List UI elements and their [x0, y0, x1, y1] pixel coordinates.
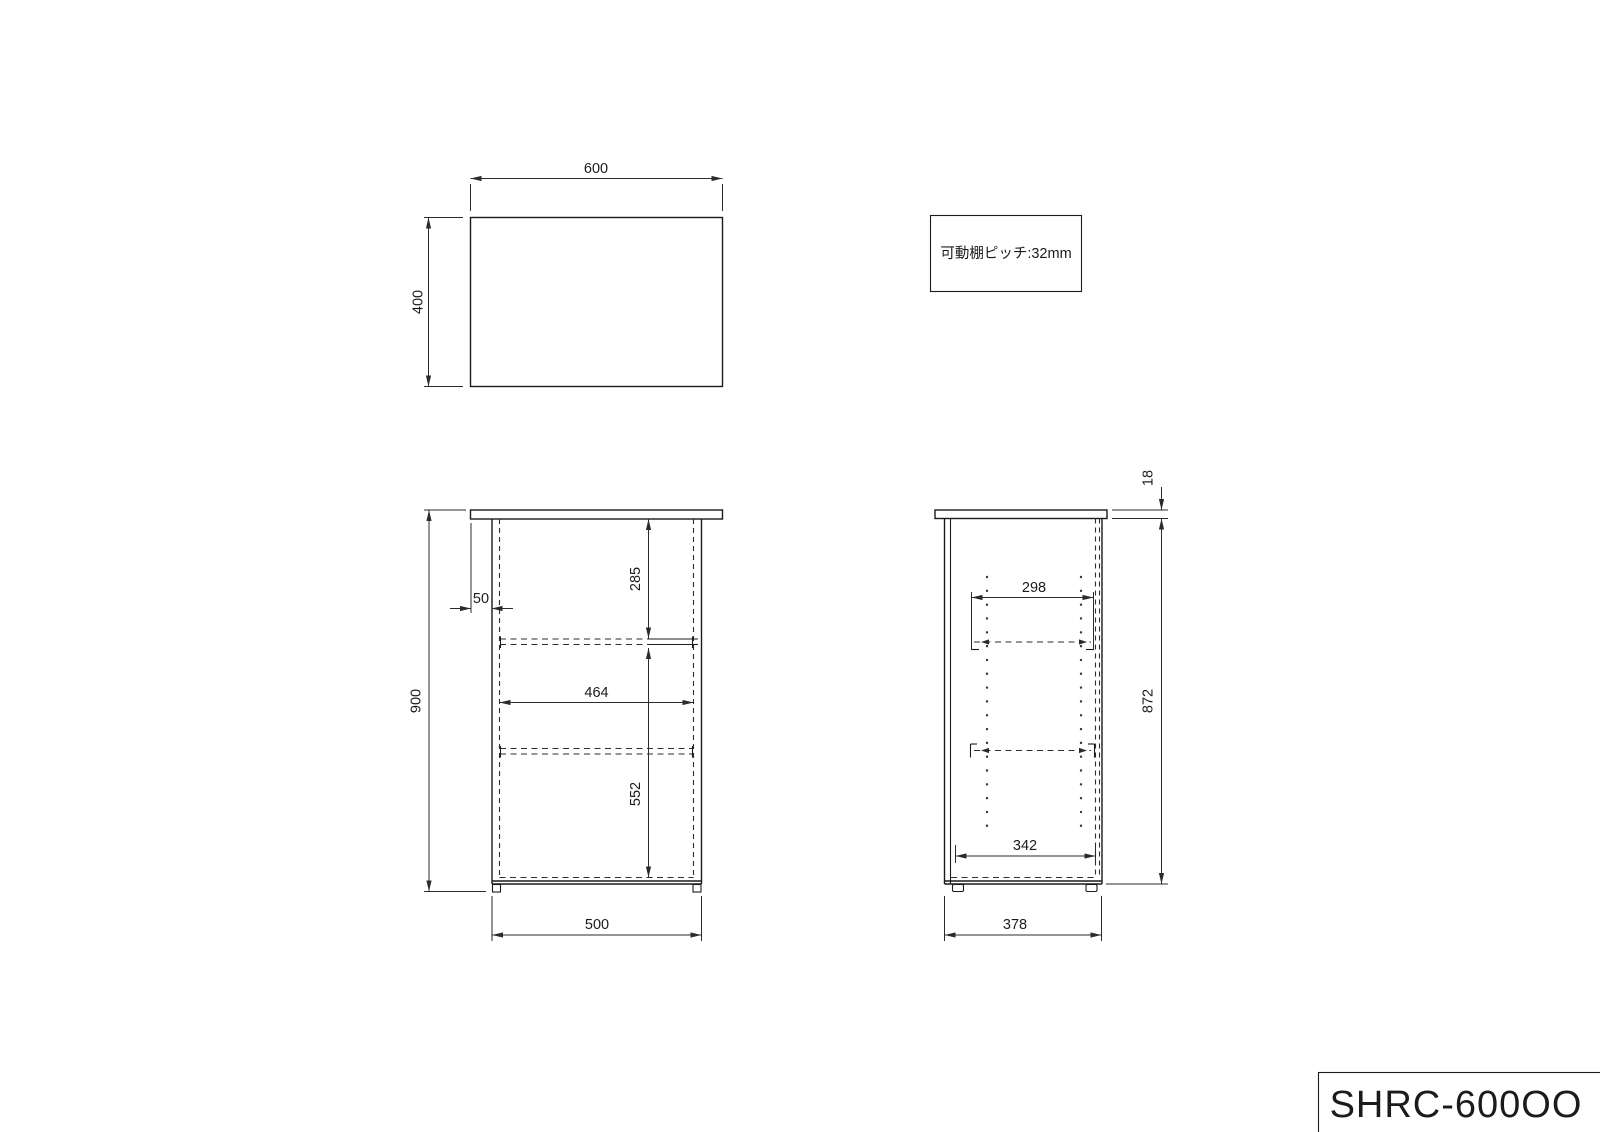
dim-label-side-body-height: 872: [1141, 689, 1157, 713]
dim-label-top-width: 600: [584, 161, 608, 177]
top-view: 600 400: [411, 161, 723, 387]
top-view-outline: [471, 218, 723, 387]
side-view: 298 18 872 342 378: [935, 470, 1168, 941]
dim-label-front-height: 900: [409, 689, 425, 713]
front-right-foot: [693, 885, 701, 893]
dim-label-front-inner-width: 464: [584, 685, 608, 701]
front-top-panel: [471, 510, 723, 519]
side-back-foot: [1086, 885, 1097, 892]
dim-label-front-top-to-shelf: 285: [628, 567, 644, 591]
dim-label-front-overhang: 50: [473, 591, 489, 607]
note-box: 可動棚ピッチ:32mm: [931, 216, 1082, 292]
technical-drawing-page: 600 400 可動棚ピッチ:32mm: [0, 0, 1600, 1132]
title-block: SHRC-600OO: [1319, 1073, 1600, 1132]
front-left-foot: [493, 885, 501, 893]
dim-label-side-inner-depth: 342: [1013, 838, 1037, 854]
model-number: SHRC-600OO: [1330, 1084, 1583, 1126]
side-front-foot: [953, 885, 964, 892]
drawing-canvas: 600 400 可動棚ピッチ:32mm: [0, 0, 1600, 1132]
dim-label-front-shelf-to-bottom: 552: [628, 782, 644, 806]
front-view: 900 50 285 552 464 500: [409, 510, 723, 941]
dim-label-side-top-thickness: 18: [1141, 470, 1157, 486]
dim-label-front-body-width: 500: [585, 917, 609, 933]
shelf-pitch-note: 可動棚ピッチ:32mm: [940, 245, 1071, 262]
dim-label-side-body-depth: 378: [1003, 917, 1027, 933]
dim-label-side-shelf-depth: 298: [1022, 580, 1046, 596]
dim-label-top-depth: 400: [411, 290, 427, 314]
side-top-panel: [935, 510, 1107, 519]
